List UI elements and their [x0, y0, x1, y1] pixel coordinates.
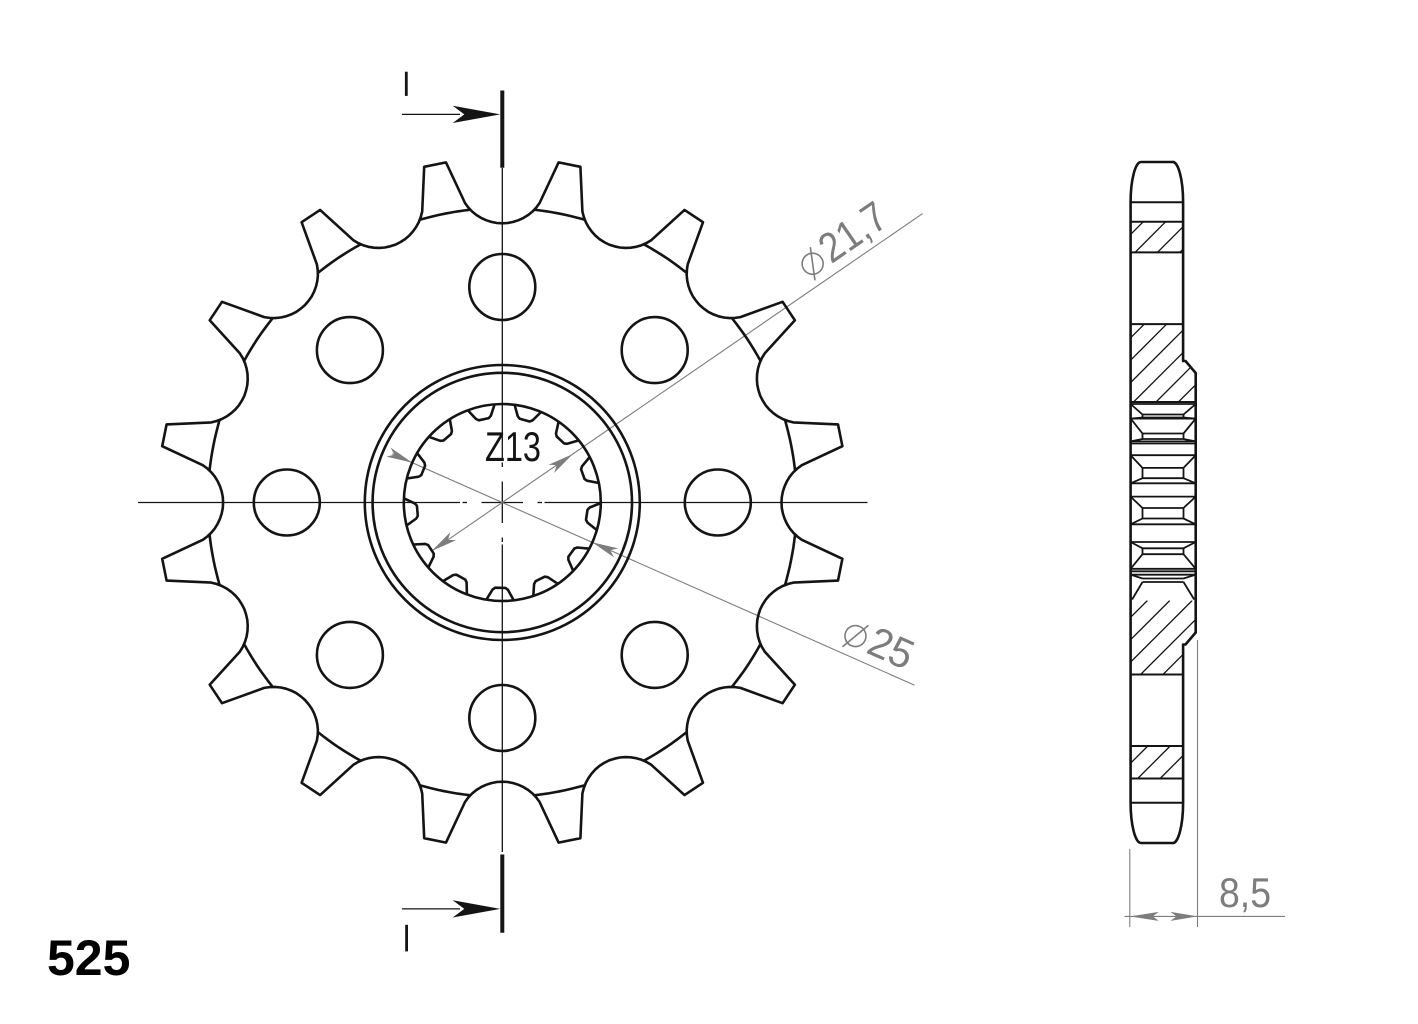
svg-text:Z13: Z13 [485, 423, 541, 470]
svg-text:8,5: 8,5 [1219, 869, 1271, 916]
svg-text:525: 525 [47, 930, 130, 986]
